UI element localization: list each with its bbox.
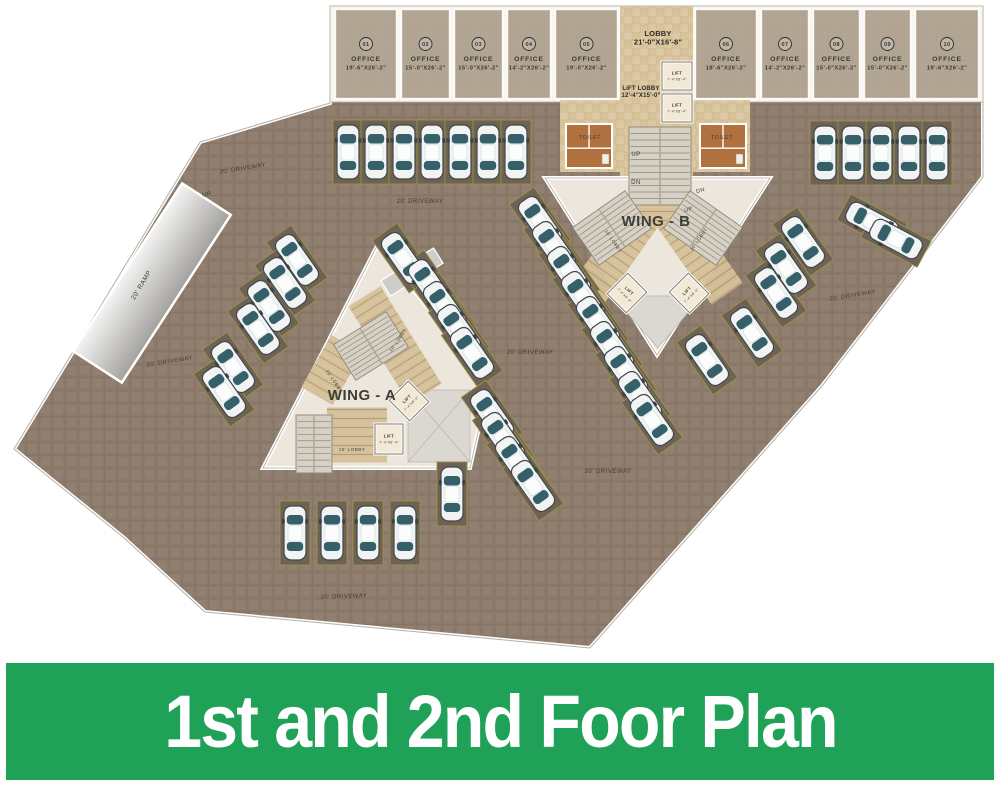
office-walls — [761, 9, 809, 99]
lift-shaft: LIFT7'-4"X8'-4" — [662, 94, 692, 122]
toilet-room — [700, 124, 746, 168]
toilet-room — [566, 124, 612, 168]
car-mirror-right — [415, 519, 418, 524]
car-rear-glass — [340, 161, 356, 170]
office-label: OFFICE — [932, 56, 962, 63]
office-label: OFFICE — [711, 56, 741, 63]
car-mirror-left — [840, 139, 843, 144]
wing-b-label: WING - B — [622, 213, 691, 230]
office-room: 08OFFICE15'-0"X26'-2" — [813, 9, 860, 99]
car-rear-glass — [508, 161, 524, 170]
car-roof — [902, 146, 916, 162]
lift-lobby-label-line: LIFT LOBBY — [622, 86, 659, 92]
car-mirror-left — [355, 519, 358, 524]
car-mirror-right — [442, 138, 445, 143]
car-mirror-left — [896, 139, 899, 144]
car-mirror-right — [378, 519, 381, 524]
car-rear-glass — [817, 162, 833, 171]
car-windshield — [929, 135, 945, 145]
car-rear-glass — [873, 162, 889, 171]
office-room: 07OFFICE14'-2"X26'-2" — [761, 9, 809, 99]
office-dims: 15'-0"X26'-2" — [458, 66, 499, 72]
staircase — [296, 415, 332, 473]
office-walls — [864, 9, 911, 99]
car-mirror-right — [342, 519, 345, 524]
office-room: 03OFFICE15'-0"X26'-2" — [454, 9, 503, 99]
car-mirror-left — [868, 139, 871, 144]
floor-plan-page: 01OFFICE19'-6"X26'-2"02OFFICE15'-0"X26'-… — [0, 0, 1001, 789]
car-windshield — [324, 515, 340, 525]
car-mirror-left — [363, 138, 366, 143]
car-rear-glass — [480, 161, 496, 170]
car-mirror-left — [475, 138, 478, 143]
car-windshield — [397, 515, 413, 525]
car-roof — [930, 146, 944, 162]
car-windshield — [360, 515, 376, 525]
car-windshield — [287, 515, 303, 525]
car-roof — [369, 145, 383, 161]
car-roof — [846, 146, 860, 162]
car-mirror-right — [498, 138, 501, 143]
car-mirror-right — [919, 139, 922, 144]
car — [503, 125, 529, 179]
lift-dims: 7'-4"X8'-4" — [379, 441, 398, 445]
car-rear-glass — [287, 542, 303, 551]
office-dims: 19'-0"X26'-2" — [566, 66, 607, 72]
car-windshield — [873, 135, 889, 145]
lift-dims: 7'-4"X8'-4" — [667, 78, 686, 82]
lift-shaft: LIFT7'-4"X8'-4" — [662, 62, 692, 90]
office-label: OFFICE — [411, 56, 441, 63]
car-mirror-left — [812, 139, 815, 144]
car — [363, 125, 389, 179]
office-label: OFFICE — [770, 56, 800, 63]
car — [924, 126, 950, 180]
car-rear-glass — [360, 542, 376, 551]
car-roof — [341, 145, 355, 161]
office-dims: 19'-6"X26'-2" — [346, 66, 387, 72]
office-label: OFFICE — [351, 56, 381, 63]
office-walls — [555, 9, 618, 99]
car-mirror-left — [439, 480, 442, 485]
car-mirror-right — [526, 138, 529, 143]
office-dims: 18'-6"X26'-2" — [706, 66, 747, 72]
car-mirror-left — [335, 138, 338, 143]
car-rear-glass — [929, 162, 945, 171]
toilet-fixture — [602, 154, 609, 164]
office-walls — [915, 9, 979, 99]
lift-lobby-label: LIFT LOBBY12'-4"X15'-0" — [621, 86, 660, 99]
car — [439, 467, 465, 521]
office-dims: 14'-2"X26'-2" — [765, 66, 806, 72]
car — [868, 126, 894, 180]
car-windshield — [396, 134, 412, 144]
car — [447, 125, 473, 179]
car-roof — [481, 145, 495, 161]
car-mirror-left — [319, 519, 322, 524]
car-mirror-right — [891, 139, 894, 144]
car-roof — [325, 526, 339, 542]
title-banner: 1st and 2nd Foor Plan — [6, 663, 994, 780]
driveway-label: 20' DRIVEWAY — [397, 199, 444, 205]
office-number: 08 — [833, 42, 840, 48]
office-label: OFFICE — [514, 56, 544, 63]
lift-label: LIFT — [384, 434, 394, 439]
car-rear-glass — [424, 161, 440, 170]
car — [896, 126, 922, 180]
car-windshield — [444, 476, 460, 486]
office-dims: 14'-2"X26'-2" — [509, 66, 550, 72]
car-mirror-right — [863, 139, 866, 144]
lift-shaft: LIFT7'-4"X8'-4" — [375, 424, 403, 454]
car-rear-glass — [396, 161, 412, 170]
office-number: 05 — [583, 42, 590, 48]
office-dims: 15'-0"X26'-2" — [816, 66, 857, 72]
lift-label: LIFT — [672, 71, 682, 76]
banner-title: 1st and 2nd Foor Plan — [164, 679, 837, 764]
car-rear-glass — [444, 503, 460, 512]
car — [355, 506, 381, 560]
car-roof — [361, 526, 375, 542]
office-walls — [507, 9, 551, 99]
stairs-up-label: UP — [631, 152, 640, 158]
office-number: 09 — [884, 42, 891, 48]
office-label: OFFICE — [464, 56, 494, 63]
office-label: OFFICE — [572, 56, 602, 63]
car-roof — [288, 526, 302, 542]
lift-lobby-label-line: 12'-4"X15'-0" — [621, 93, 660, 99]
office-number: 02 — [422, 42, 429, 48]
car-mirror-right — [947, 139, 950, 144]
car — [392, 506, 418, 560]
car-rear-glass — [901, 162, 917, 171]
office-number: 01 — [362, 42, 369, 48]
office-room: 09OFFICE15'-0"X26'-2" — [864, 9, 911, 99]
driveway-label: 20' DRIVEWAY — [507, 350, 554, 356]
car-mirror-right — [462, 480, 465, 485]
car-mirror-left — [503, 138, 506, 143]
office-dims: 15'-0"X26'-2" — [867, 66, 908, 72]
car-mirror-left — [391, 138, 394, 143]
car-rear-glass — [324, 542, 340, 551]
car-windshield — [817, 135, 833, 145]
office-number: 04 — [525, 42, 533, 48]
car-mirror-left — [392, 519, 395, 524]
car — [419, 125, 445, 179]
office-number: 06 — [722, 42, 729, 48]
staircase — [629, 127, 691, 205]
lobby10-label: 10' LOBBY — [339, 447, 366, 452]
toilet-label: TOILET — [711, 135, 733, 141]
car — [840, 126, 866, 180]
car-windshield — [452, 134, 468, 144]
car-rear-glass — [397, 542, 413, 551]
car-roof — [397, 145, 411, 161]
office-walls — [813, 9, 860, 99]
office-number: 07 — [781, 42, 788, 48]
car-roof — [398, 526, 412, 542]
office-number: 10 — [943, 42, 950, 48]
office-room: 04OFFICE14'-2"X26'-2" — [507, 9, 551, 99]
lobby-label-line: 21'-0"X16'-8" — [634, 38, 683, 47]
car-mirror-right — [835, 139, 838, 144]
car — [391, 125, 417, 179]
car-roof — [874, 146, 888, 162]
office-room: 02OFFICE15'-0"X26'-2" — [401, 9, 450, 99]
car-mirror-left — [419, 138, 422, 143]
office-dims: 15'-0"X26'-2" — [405, 66, 446, 72]
car — [335, 125, 361, 179]
car-rear-glass — [845, 162, 861, 171]
car-mirror-right — [386, 138, 389, 143]
office-room: 10OFFICE19'-6"X26'-2" — [915, 9, 979, 99]
car-roof — [509, 145, 523, 161]
car-roof — [445, 487, 459, 503]
stairs-dn-label: DN — [631, 180, 641, 186]
car-mirror-right — [305, 519, 308, 524]
office-walls — [335, 9, 397, 99]
lift-halo — [375, 424, 403, 454]
car-windshield — [368, 134, 384, 144]
office-number: 03 — [475, 42, 482, 48]
lift-halo — [662, 94, 692, 122]
office-dims: 19'-6"X26'-2" — [927, 66, 968, 72]
car-mirror-right — [358, 138, 361, 143]
office-walls — [695, 9, 757, 99]
office-room: 01OFFICE19'-6"X26'-2" — [335, 9, 397, 99]
car-windshield — [845, 135, 861, 145]
office-label: OFFICE — [873, 56, 903, 63]
car-rear-glass — [452, 161, 468, 170]
office-walls — [454, 9, 503, 99]
car-roof — [453, 145, 467, 161]
car — [282, 506, 308, 560]
office-label: OFFICE — [822, 56, 852, 63]
car — [319, 506, 345, 560]
car-rear-glass — [368, 161, 384, 170]
car-mirror-right — [414, 138, 417, 143]
car-mirror-right — [470, 138, 473, 143]
car-windshield — [480, 134, 496, 144]
office-room: 06OFFICE18'-6"X26'-2" — [695, 9, 757, 99]
lift-halo — [662, 62, 692, 90]
car-mirror-left — [447, 138, 450, 143]
car — [475, 125, 501, 179]
car-roof — [818, 146, 832, 162]
car-windshield — [340, 134, 356, 144]
car-mirror-left — [924, 139, 927, 144]
car-windshield — [424, 134, 440, 144]
car-windshield — [508, 134, 524, 144]
lift-label: LIFT — [672, 103, 682, 108]
toilet-label: TOILET — [579, 135, 601, 141]
toilet-fixture — [736, 154, 743, 164]
car-mirror-left — [282, 519, 285, 524]
office-room: 05OFFICE19'-0"X26'-2" — [555, 9, 618, 99]
car-roof — [425, 145, 439, 161]
car — [812, 126, 838, 180]
floor-plan-drawing: 01OFFICE19'-6"X26'-2"02OFFICE15'-0"X26'-… — [0, 0, 1001, 663]
lift-dims: 7'-4"X8'-4" — [667, 110, 686, 114]
office-walls — [401, 9, 450, 99]
driveway-label: 20' DRIVEWAY — [585, 469, 632, 475]
car-windshield — [901, 135, 917, 145]
